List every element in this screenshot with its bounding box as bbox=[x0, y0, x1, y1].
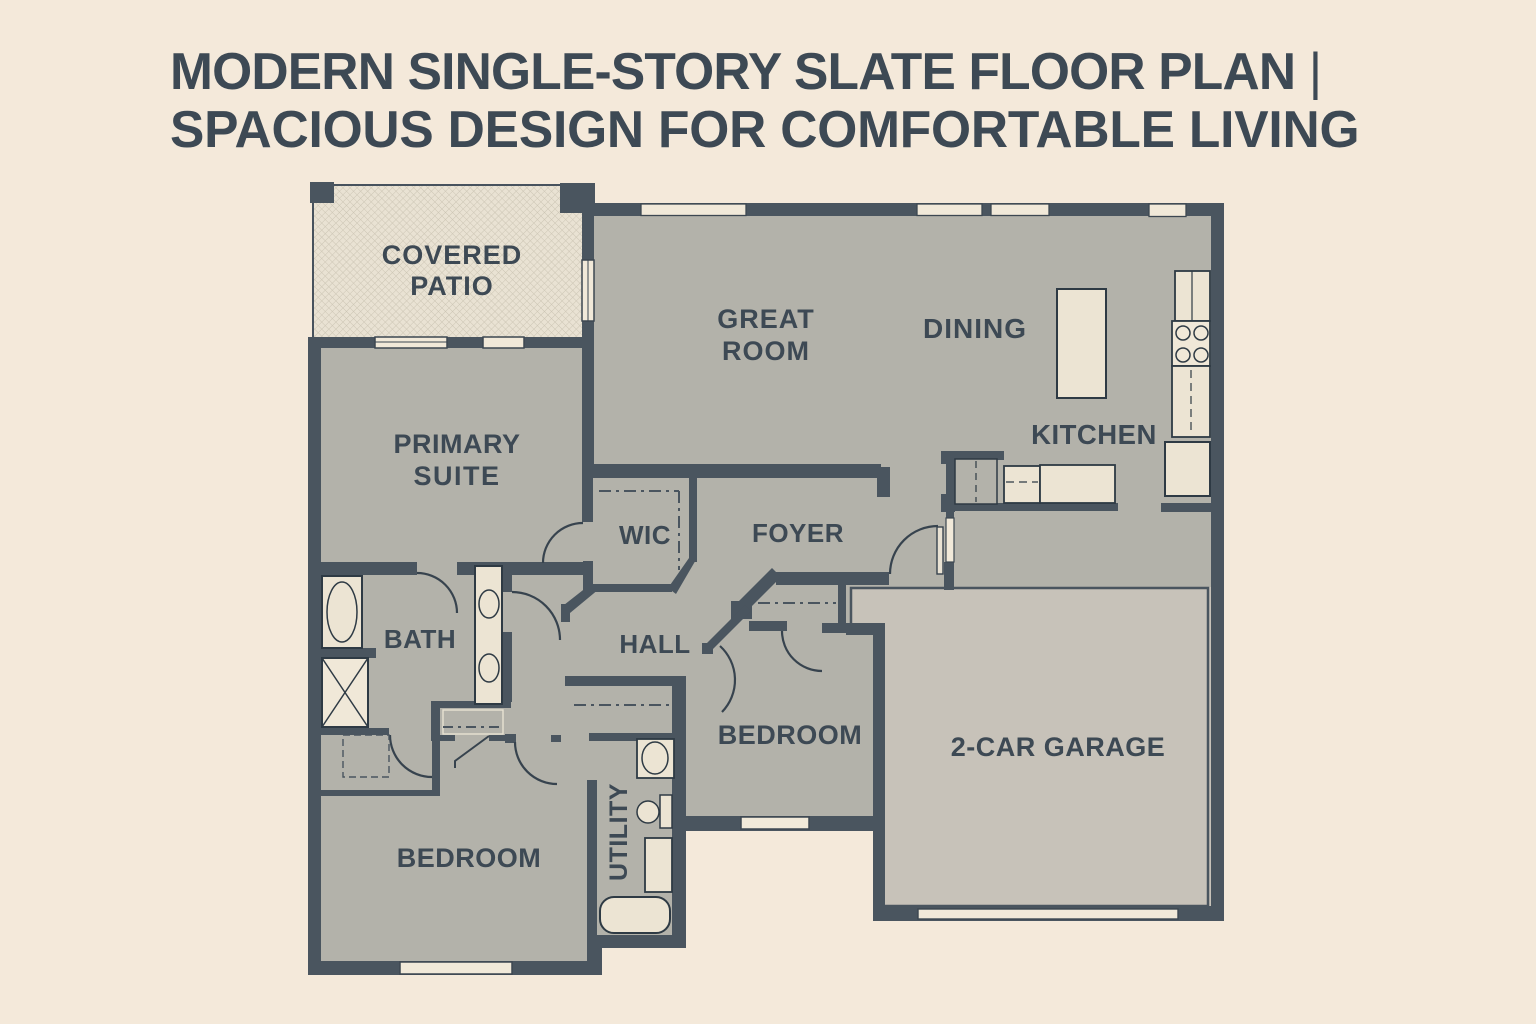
svg-text:ROOM: ROOM bbox=[722, 336, 810, 366]
svg-text:BEDROOM: BEDROOM bbox=[718, 720, 863, 750]
svg-text:BATH: BATH bbox=[384, 624, 456, 654]
svg-text:SPACIOUS DESIGN FOR COMFORTABL: SPACIOUS DESIGN FOR COMFORTABLE LIVING bbox=[170, 100, 1359, 158]
svg-text:PATIO: PATIO bbox=[410, 271, 494, 301]
svg-text:WIC: WIC bbox=[619, 520, 671, 550]
svg-text:PRIMARY: PRIMARY bbox=[393, 429, 520, 459]
svg-text:COVERED: COVERED bbox=[382, 240, 523, 270]
svg-text:SUITE: SUITE bbox=[413, 461, 500, 491]
svg-text:FOYER: FOYER bbox=[752, 518, 844, 548]
svg-text:2-CAR GARAGE: 2-CAR GARAGE bbox=[951, 732, 1166, 762]
svg-text:HALL: HALL bbox=[619, 629, 690, 659]
svg-text:UTILITY: UTILITY bbox=[605, 783, 633, 881]
svg-text:GREAT: GREAT bbox=[717, 304, 815, 334]
svg-text:KITCHEN: KITCHEN bbox=[1031, 419, 1157, 450]
svg-text:BEDROOM: BEDROOM bbox=[397, 843, 542, 873]
svg-text:MODERN SINGLE-STORY SLATE FLOO: MODERN SINGLE-STORY SLATE FLOOR PLAN | bbox=[170, 42, 1321, 100]
svg-text:DINING: DINING bbox=[923, 313, 1027, 344]
